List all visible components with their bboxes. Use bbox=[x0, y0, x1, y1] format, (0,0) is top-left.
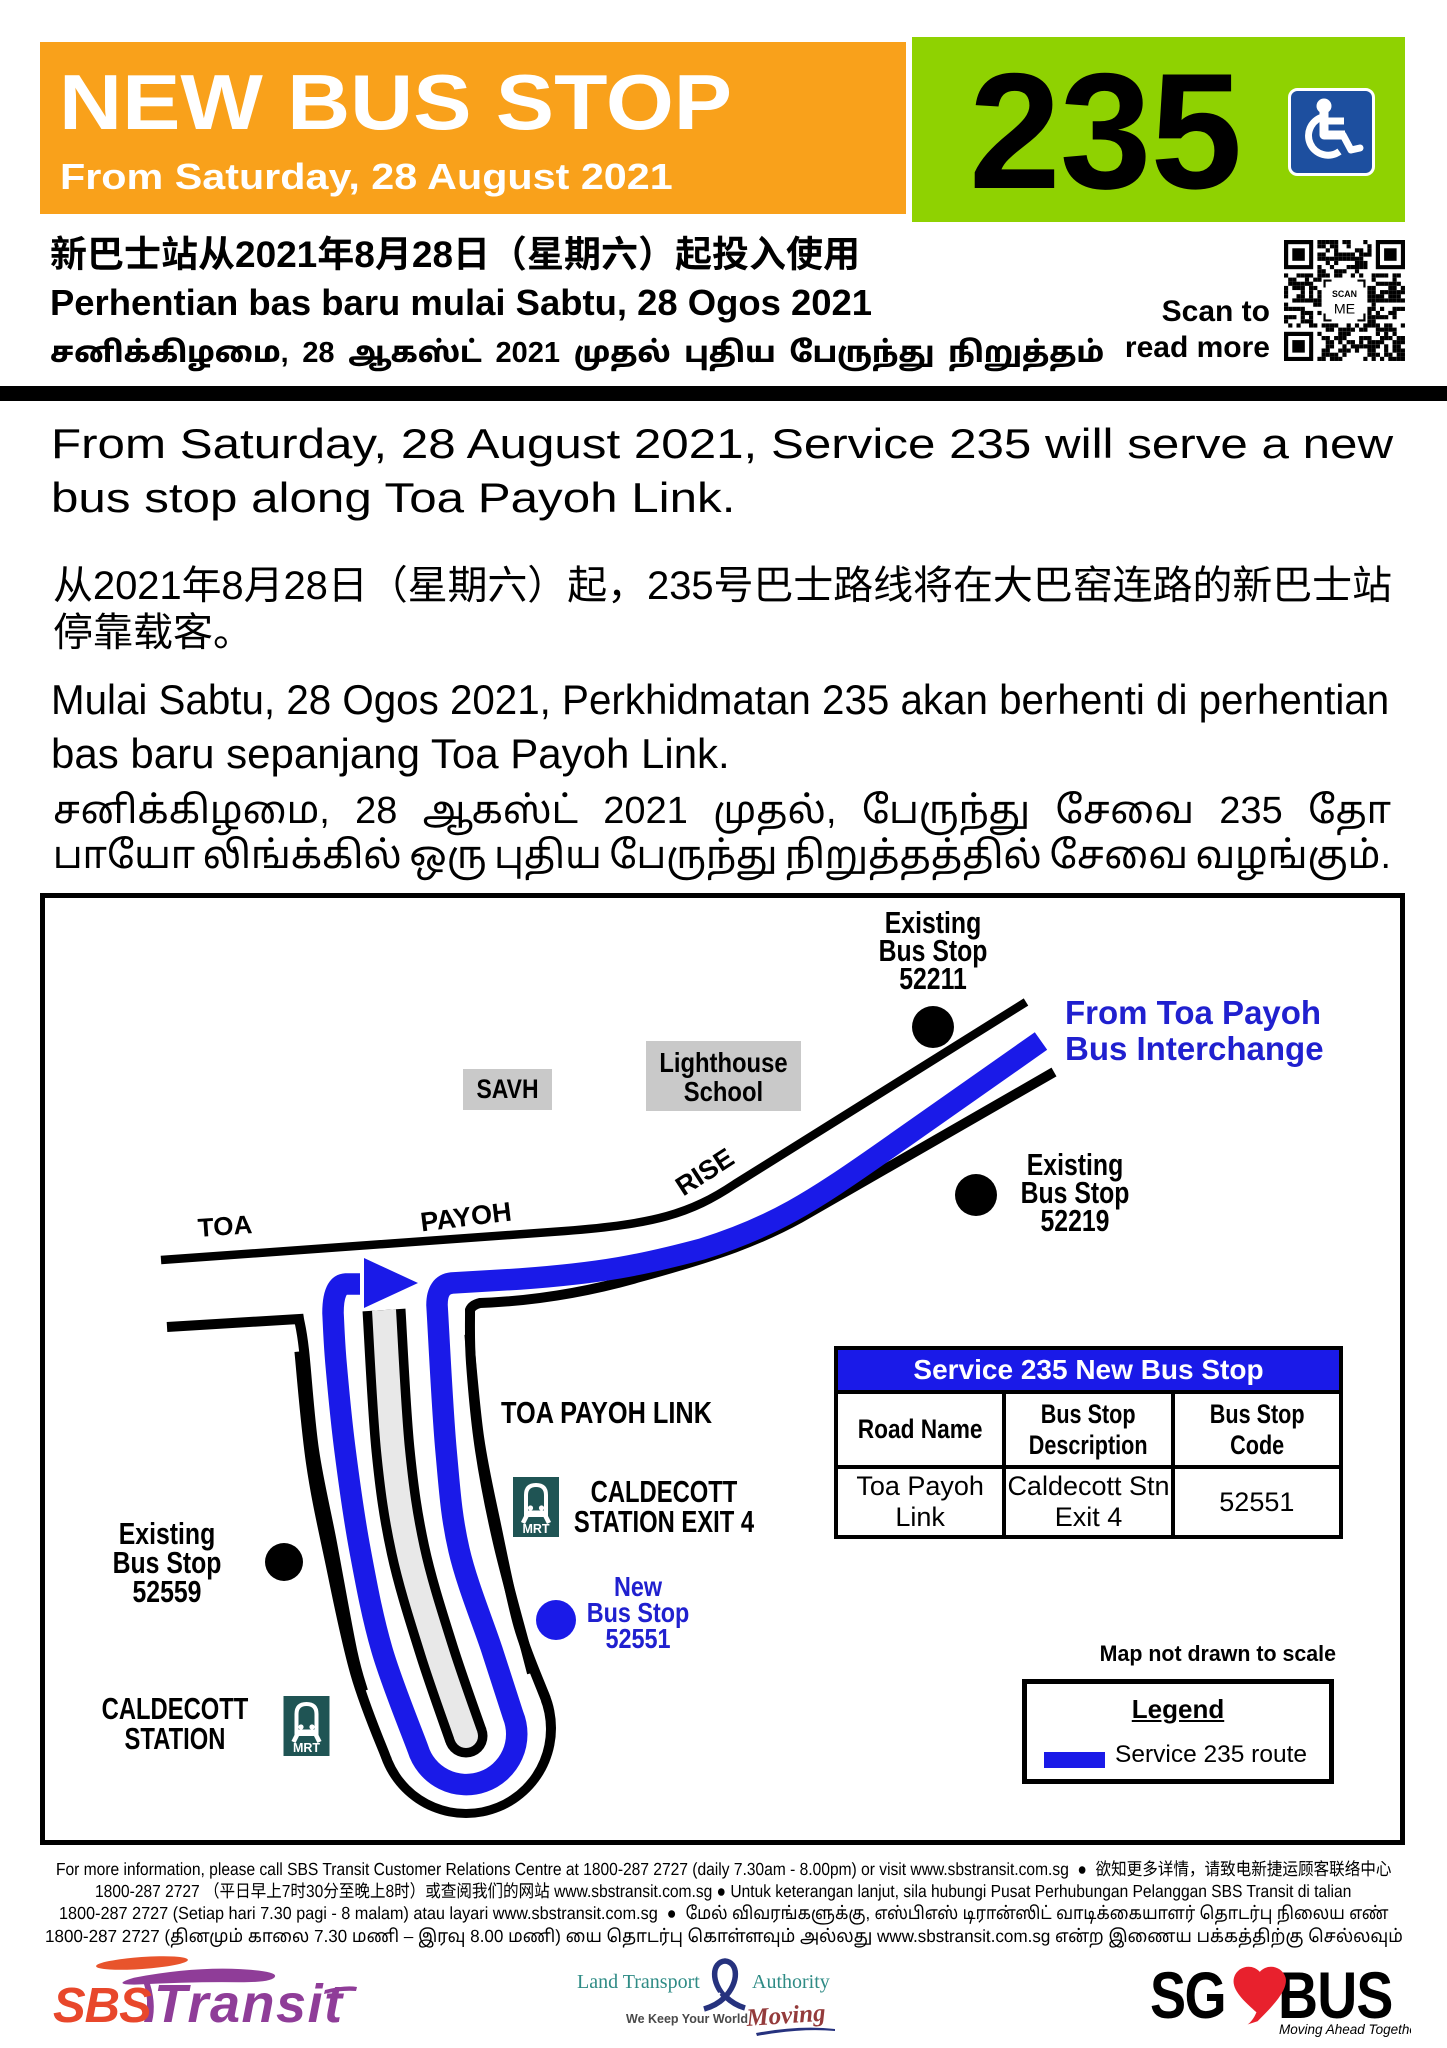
svg-text:Transit: Transit bbox=[154, 1974, 344, 2034]
svg-text:We Keep Your World: We Keep Your World bbox=[626, 2012, 748, 2026]
svg-text:Moving: Moving bbox=[745, 2000, 827, 2033]
svg-text:Moving Ahead Together: Moving Ahead Together bbox=[1279, 2022, 1411, 2037]
svg-text:ME: ME bbox=[1334, 301, 1355, 317]
svg-text:SCAN: SCAN bbox=[1332, 289, 1357, 299]
svg-text:Authority: Authority bbox=[752, 1971, 830, 1993]
svg-text:MRT: MRT bbox=[522, 1522, 549, 1536]
svg-text:MRT: MRT bbox=[293, 1741, 320, 1755]
svg-text:Land Transport: Land Transport bbox=[577, 1971, 700, 1993]
svg-text:SG: SG bbox=[1150, 1958, 1225, 2032]
svg-text:SBS: SBS bbox=[53, 1979, 152, 2033]
